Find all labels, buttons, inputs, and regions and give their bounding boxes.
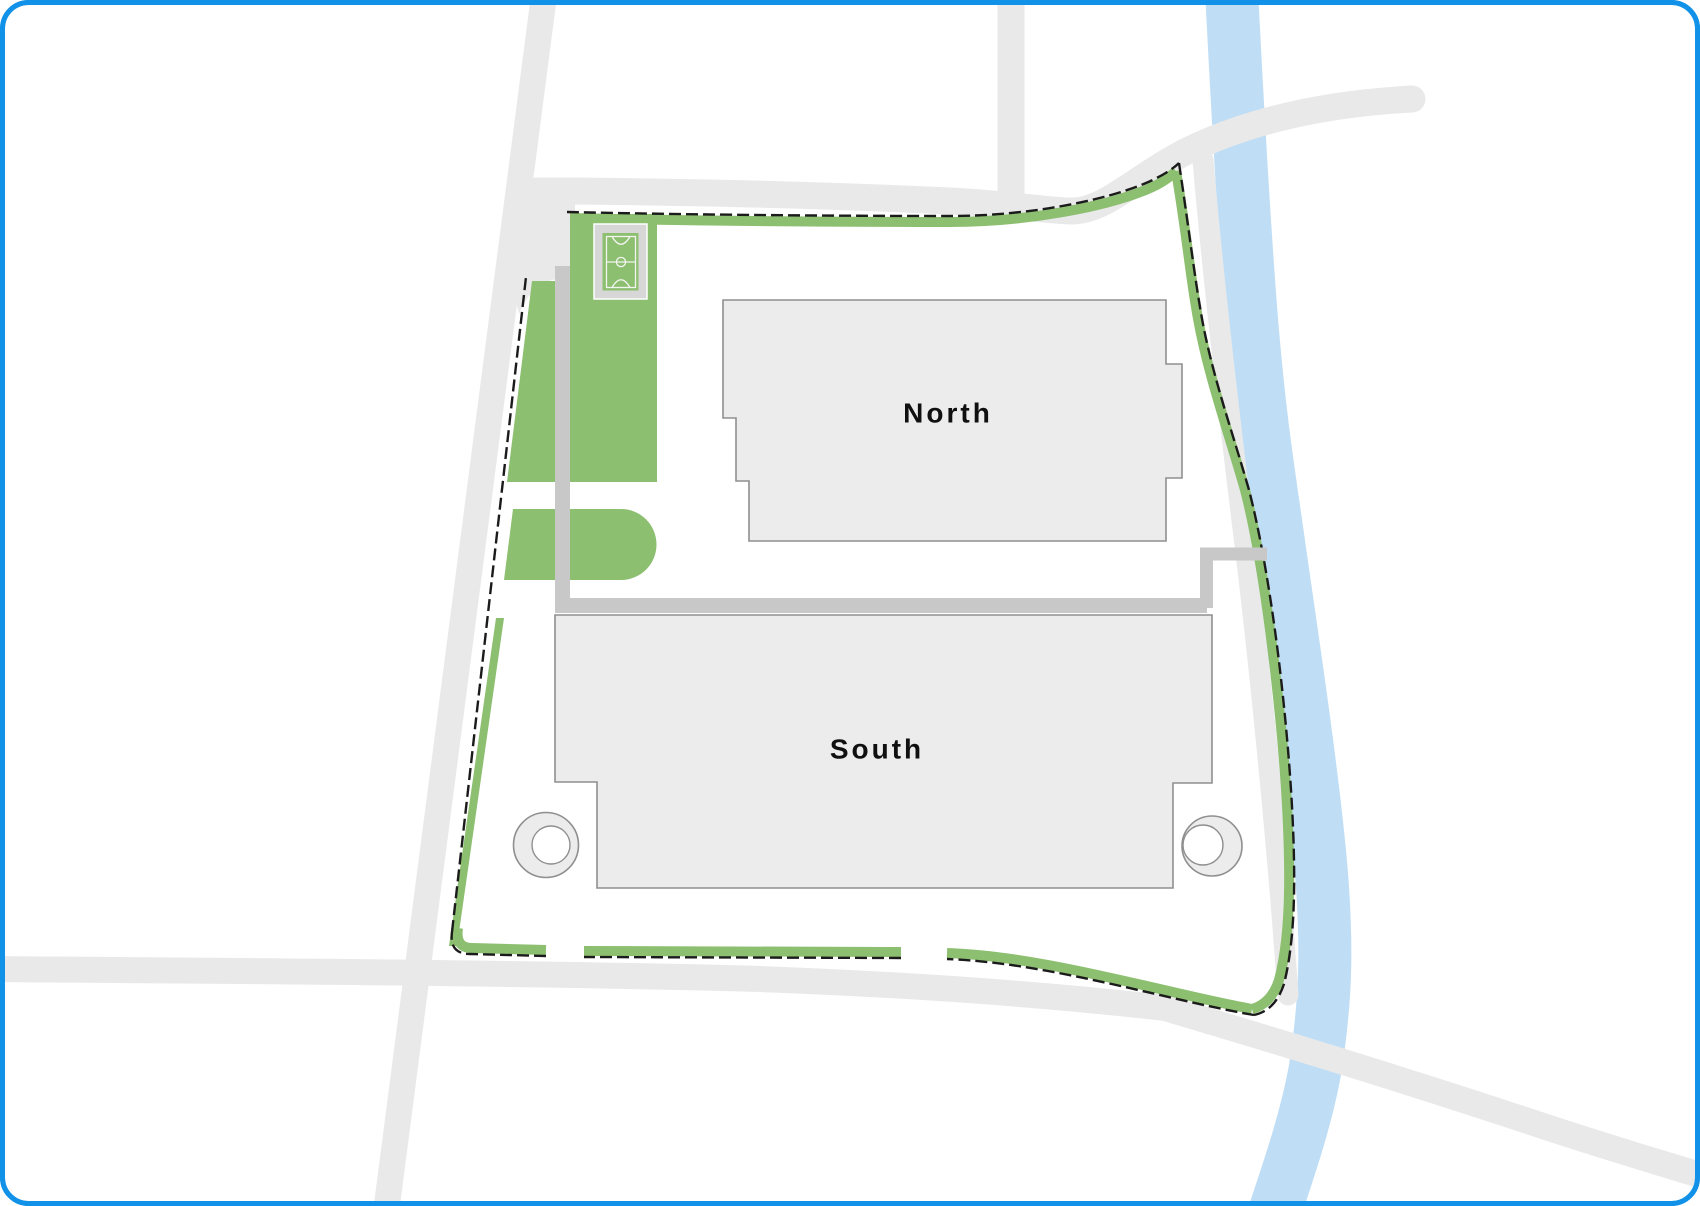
futsal-court-icon: [594, 224, 647, 299]
road-south: [0, 969, 1700, 1178]
road-west: [385, 0, 546, 1206]
building-south-east-rotunda-hole: [1183, 825, 1223, 865]
building-north-label: North: [903, 398, 993, 429]
site-map-svg: North South: [0, 0, 1700, 1206]
lawn-pill: [504, 509, 657, 580]
building-south-west-rotunda-hole: [532, 826, 570, 864]
building-south-label: South: [830, 734, 924, 765]
road-north: [537, 99, 1412, 211]
site-map: North South: [0, 0, 1700, 1206]
